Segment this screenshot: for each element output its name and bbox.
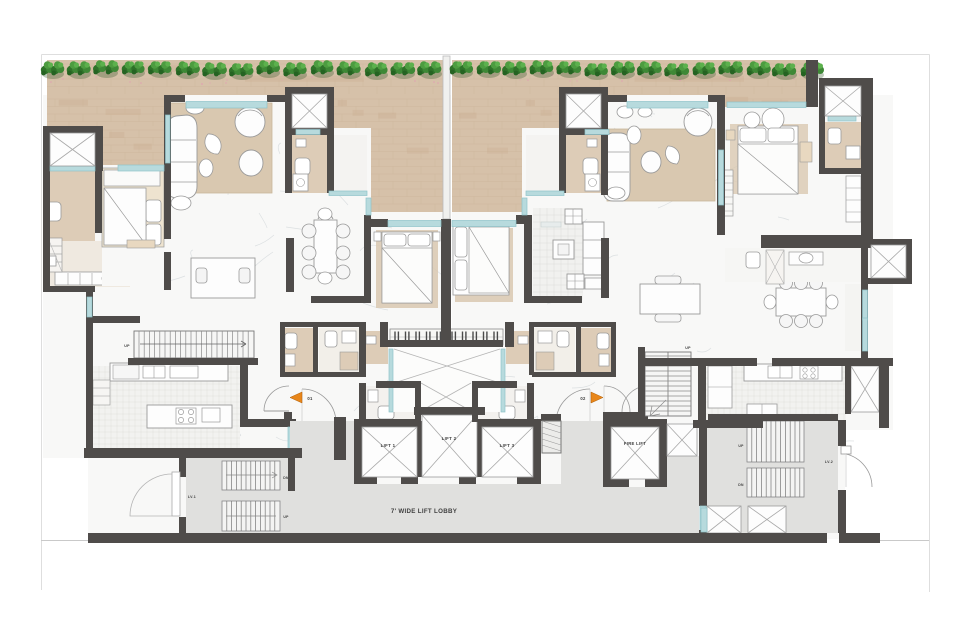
svg-text:UP: UP <box>738 444 744 448</box>
svg-text:UP: UP <box>124 344 130 348</box>
svg-text:UP: UP <box>283 515 289 519</box>
svg-text:02: 02 <box>580 396 586 401</box>
svg-text:DN: DN <box>738 483 744 487</box>
svg-text:LV.2: LV.2 <box>825 460 833 464</box>
svg-text:UP: UP <box>685 346 691 350</box>
svg-text:01: 01 <box>307 396 313 401</box>
svg-text:7' WIDE LIFT LOBBY: 7' WIDE LIFT LOBBY <box>391 508 458 515</box>
svg-text:FIRE LIFT: FIRE LIFT <box>624 441 646 446</box>
svg-text:LIFT 1: LIFT 1 <box>381 443 396 448</box>
svg-text:LV.1: LV.1 <box>188 495 196 499</box>
svg-text:LIFT 3: LIFT 3 <box>500 443 515 448</box>
svg-text:LIFT 2: LIFT 2 <box>442 436 457 441</box>
